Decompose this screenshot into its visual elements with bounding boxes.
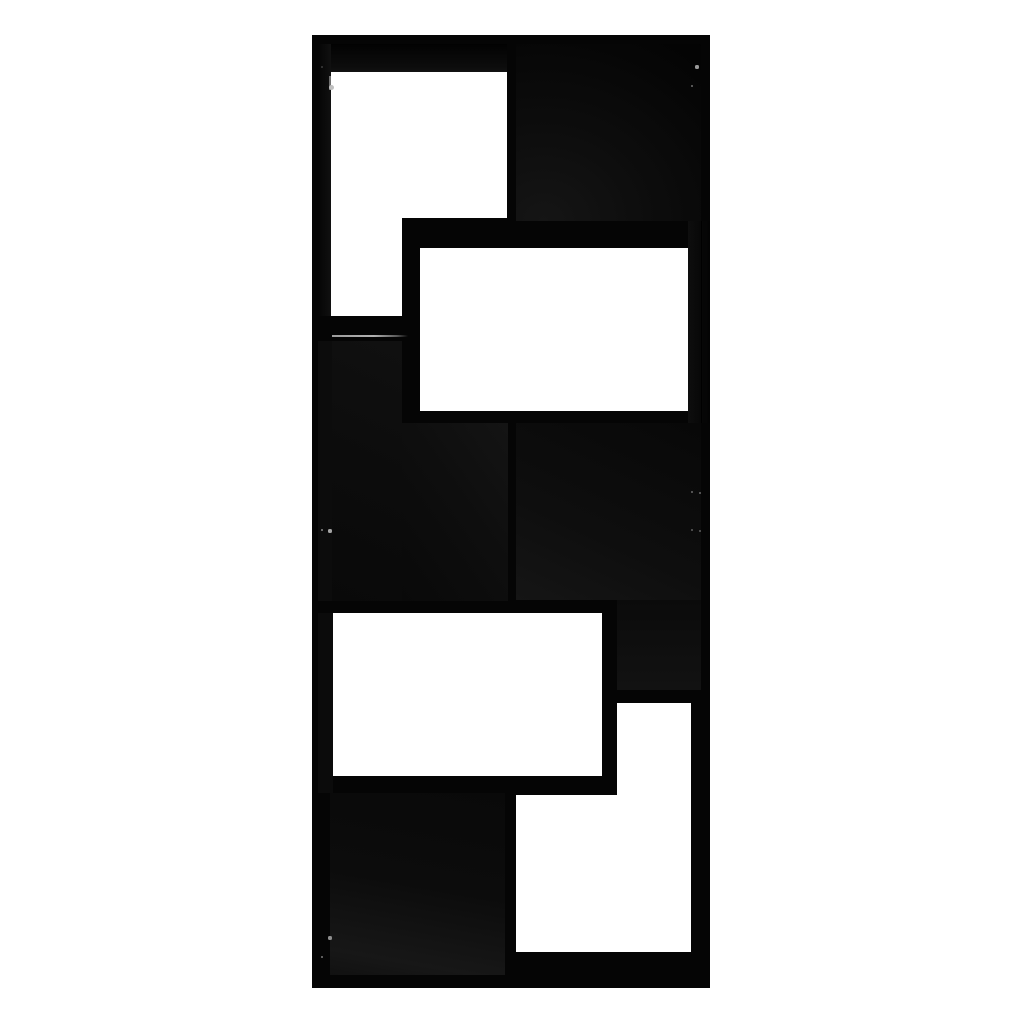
cam-hole-dot xyxy=(695,65,698,68)
box-right-wall-face xyxy=(688,221,710,423)
compartment-bottom-left-interior xyxy=(330,793,505,975)
compartment-mid-right-interior xyxy=(516,423,701,600)
cam-hole-dot xyxy=(329,85,334,90)
top-board-underside xyxy=(331,44,507,72)
cam-hole-dot xyxy=(328,529,331,532)
left-wall-inner-face-mid xyxy=(318,341,332,601)
opening-top-left-tail xyxy=(331,218,402,316)
left-wall-inner-face-lower xyxy=(318,613,333,793)
compartment-mid-left-interior-b xyxy=(402,423,508,601)
compartment-top-right-interior xyxy=(516,44,701,221)
compartment-mid-left-interior-a xyxy=(332,341,402,601)
product-photo xyxy=(0,0,1024,1024)
compartment-mid-right-lower xyxy=(617,600,701,690)
opening-lower-middle xyxy=(333,613,602,776)
opening-bottom-right-lower xyxy=(516,795,691,952)
opening-protruding-box xyxy=(420,248,688,411)
opening-bottom-right-upper xyxy=(617,703,691,795)
box-wall-seam xyxy=(701,221,702,423)
opening-top-left-main xyxy=(331,72,507,218)
cam-hole-dot xyxy=(328,936,331,939)
shelf-edge-highlight xyxy=(332,335,408,337)
